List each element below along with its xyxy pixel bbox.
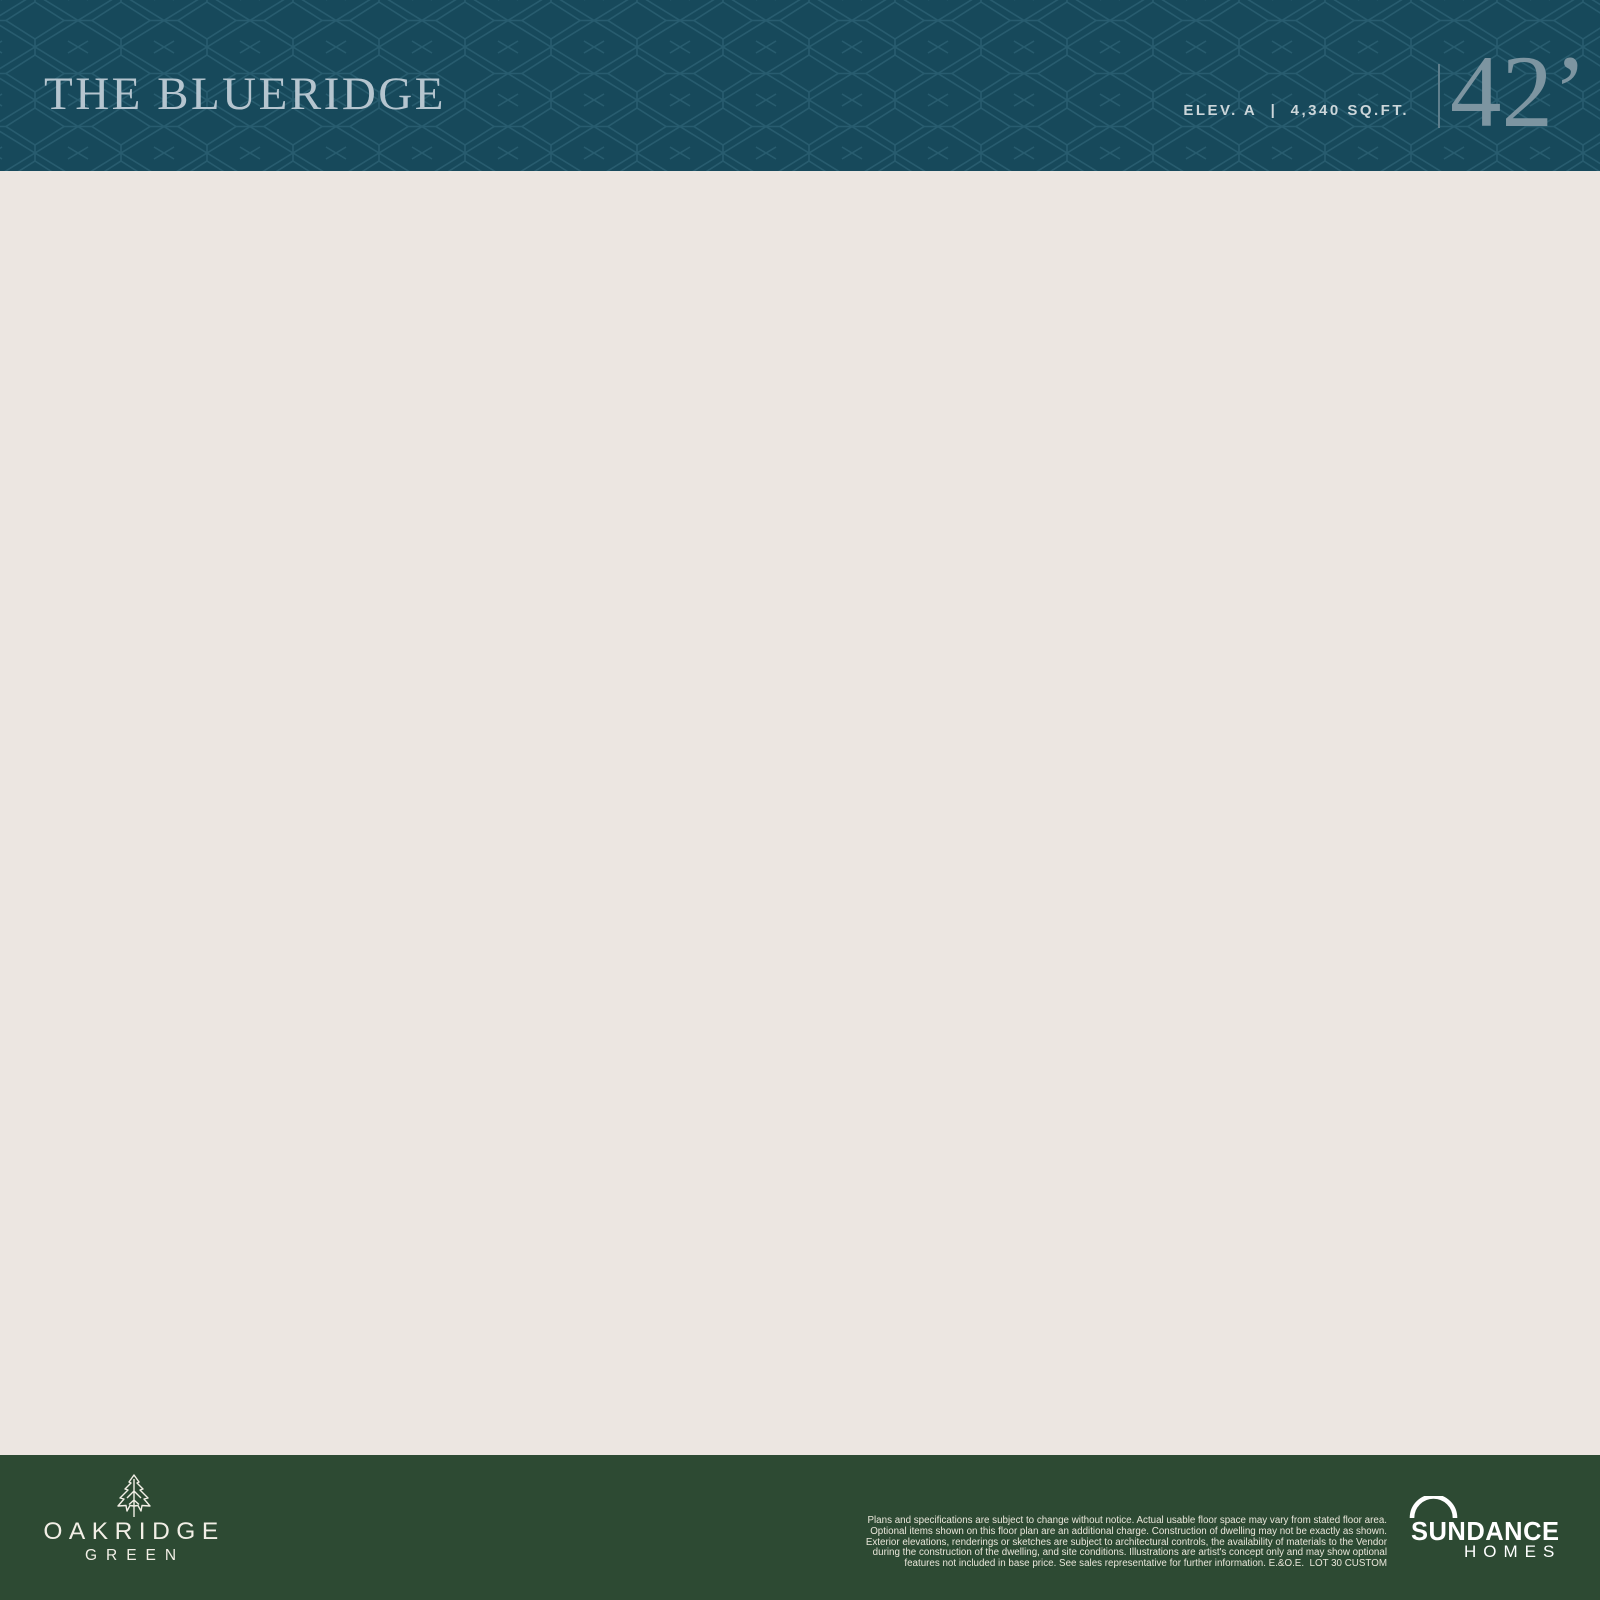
svg-text:OAKRIDGE: OAKRIDGE (43, 1518, 224, 1545)
svg-text:GREEN: GREEN (85, 1547, 185, 1564)
